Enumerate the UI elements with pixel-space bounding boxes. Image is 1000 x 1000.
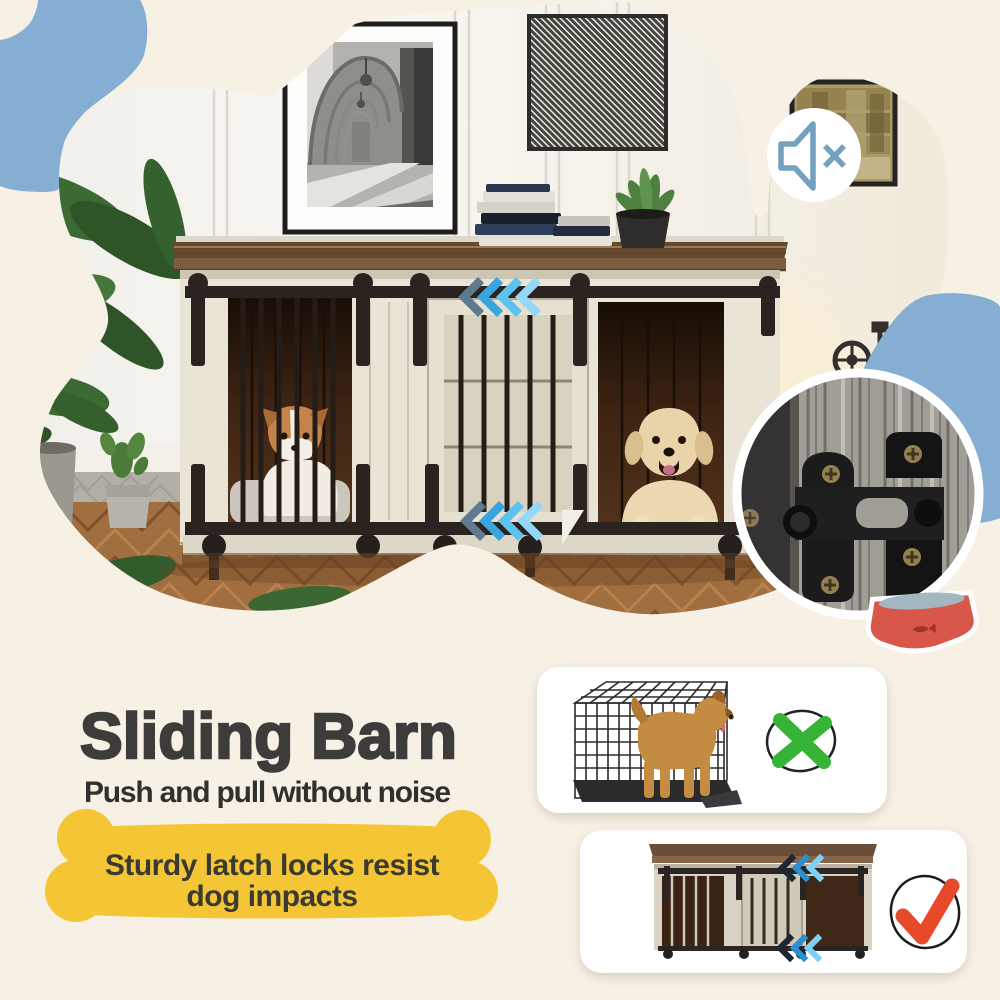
svg-text:dog impacts: dog impacts bbox=[186, 880, 357, 913]
svg-text:Sturdy latch locks resist: Sturdy latch locks resist bbox=[105, 849, 440, 882]
svg-text:Sliding Barn: Sliding Barn bbox=[80, 700, 457, 772]
svg-text:Push and pull without noise: Push and pull without noise bbox=[84, 776, 450, 809]
